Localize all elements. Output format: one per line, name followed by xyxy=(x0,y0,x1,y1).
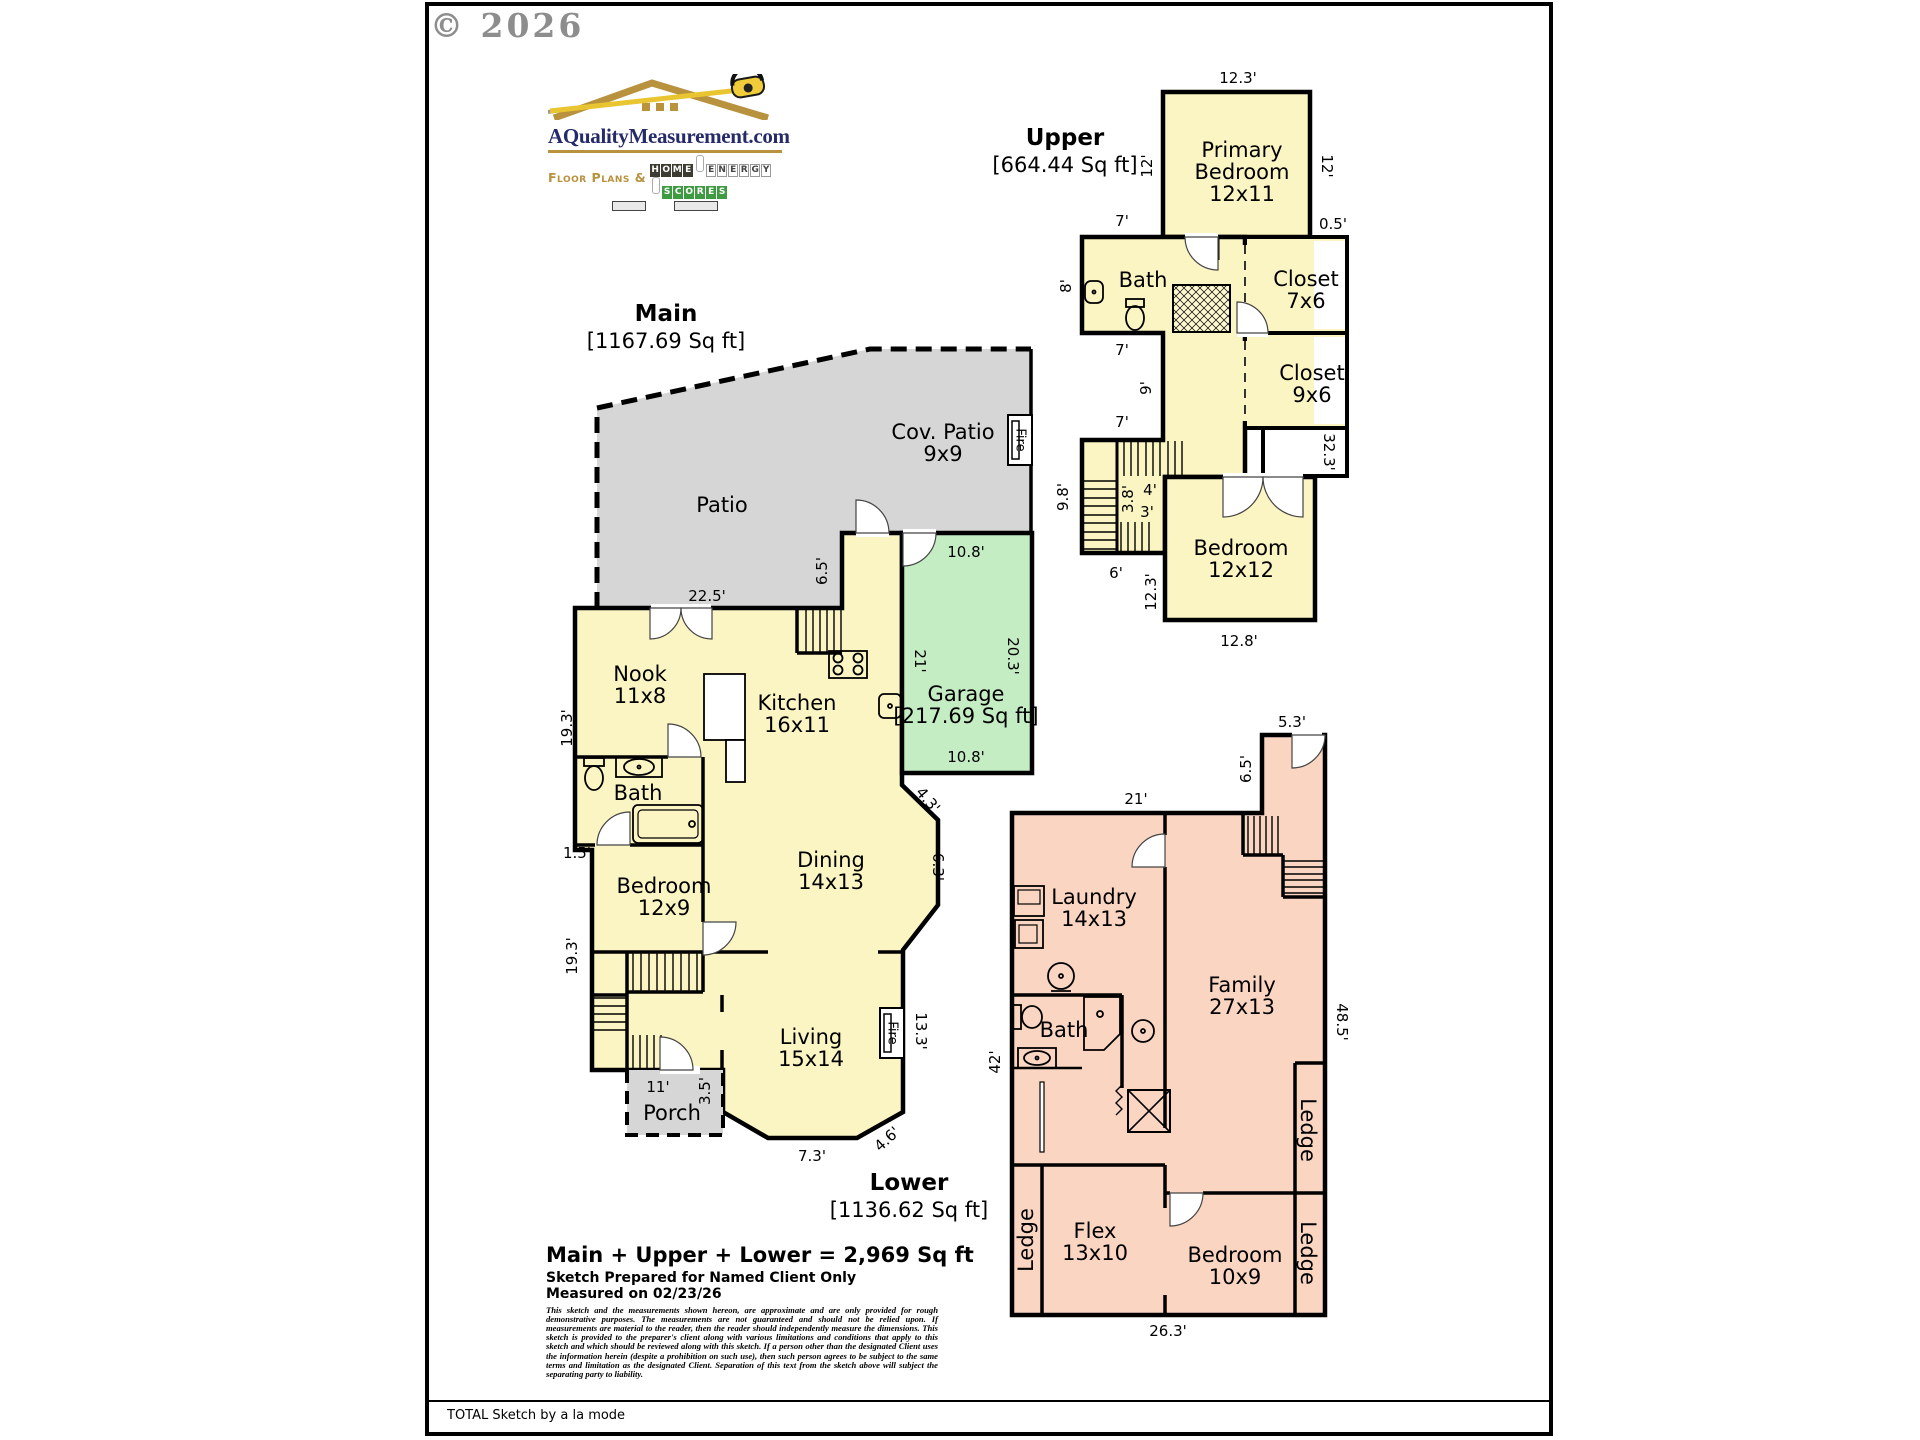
room-label: Living xyxy=(780,1025,842,1049)
room-size-label: 15x14 xyxy=(778,1047,844,1071)
dimension-label: 21' xyxy=(911,649,929,672)
dimension-label: 9' xyxy=(1137,381,1155,395)
mirror-icon xyxy=(1040,1082,1044,1152)
dimension-label: 7' xyxy=(1115,212,1129,230)
room-label: Primary xyxy=(1201,138,1282,162)
dimension-label: 6.5' xyxy=(1237,755,1255,783)
room-size-label: 14x13 xyxy=(798,870,864,894)
room-size-label: 7x6 xyxy=(1286,289,1325,313)
room-label: Flex xyxy=(1074,1219,1117,1243)
total-sqft-text: Main + Upper + Lower = 2,969 Sq ft xyxy=(546,1243,946,1267)
prepared-for-text: Sketch Prepared for Named Client Only xyxy=(546,1270,946,1286)
room-label: Bath xyxy=(1040,1018,1089,1042)
room-size-label: 9x6 xyxy=(1292,383,1331,407)
dimension-label: 19.3' xyxy=(558,709,576,747)
dimension-label: 12.8' xyxy=(1220,632,1258,650)
level-title-main: Main xyxy=(635,301,698,327)
dimension-label: 0.5' xyxy=(1319,215,1347,233)
disclaimer-text: This sketch and the measurements shown h… xyxy=(546,1306,938,1379)
room-label: Bedroom xyxy=(1188,1243,1283,1267)
level-sqft-main: [1167.69 Sq ft] xyxy=(587,329,746,353)
dimension-label: 21' xyxy=(1124,790,1147,808)
pantry-cabinet-icon xyxy=(704,674,745,740)
room-label: Laundry xyxy=(1051,885,1137,909)
dimension-label: 6.5' xyxy=(813,557,831,585)
level-title-upper: Upper xyxy=(1026,125,1105,151)
room-size-label: 10x9 xyxy=(1209,1265,1262,1289)
dimension-label: 42' xyxy=(986,1050,1004,1073)
room-label: Cov. Patio xyxy=(891,420,994,444)
dimension-label: 10.8' xyxy=(947,543,985,561)
dimension-label: 20.3' xyxy=(1004,637,1022,675)
dimension-label: 22.5' xyxy=(688,587,726,605)
level-sqft-upper: [664.44 Sq ft] xyxy=(992,153,1137,177)
room-label: Patio xyxy=(696,493,748,517)
room-label: Bath xyxy=(614,781,663,805)
room-size-label: 12x9 xyxy=(638,896,691,920)
room-label: Bath xyxy=(1119,268,1168,292)
room-label: Closet xyxy=(1273,267,1338,291)
dimension-label: 32.3' xyxy=(1320,433,1338,471)
room-label: Kitchen xyxy=(758,691,837,715)
room-label: Closet xyxy=(1279,361,1344,385)
dimension-label: 12' xyxy=(1138,154,1156,177)
room-size-label: 27x13 xyxy=(1209,995,1275,1019)
level-sqft-lower: [1136.62 Sq ft] xyxy=(830,1198,989,1222)
room-label: Fire xyxy=(885,1021,900,1044)
floorplan-canvas: Main[1167.69 Sq ft]Cov. Patio9x9PatioNoo… xyxy=(0,0,1920,1440)
dimension-label: 13.3' xyxy=(912,1012,930,1050)
room-label: Ledge xyxy=(1296,1098,1320,1162)
room-size-label: 13x10 xyxy=(1062,1241,1128,1265)
room-label: Ledge xyxy=(1296,1221,1320,1285)
summary-block: Main + Upper + Lower = 2,969 Sq ft Sketc… xyxy=(546,1243,946,1379)
dimension-label: 12.3' xyxy=(1219,69,1257,87)
room-label: Bedroom xyxy=(1194,536,1289,560)
room-label: Fire xyxy=(1013,428,1028,451)
room-label: Garage xyxy=(928,682,1005,706)
room-label: Family xyxy=(1208,973,1276,997)
dimension-label: 1.5' xyxy=(563,844,591,862)
footer-divider xyxy=(429,1400,1549,1402)
room-size-label: [217.69 Sq ft] xyxy=(893,704,1038,728)
dimension-label: 9.8' xyxy=(1054,483,1072,511)
dimension-label: 6.3' xyxy=(929,853,947,881)
dimension-label: 26.3' xyxy=(1149,1322,1187,1340)
dimension-label: 7.3' xyxy=(798,1147,826,1165)
dimension-label: 3' xyxy=(1140,503,1154,521)
dimension-label: 4' xyxy=(1143,481,1157,499)
dimension-label: 12.3' xyxy=(1142,573,1160,611)
measured-on-text: Measured on 02/23/26 xyxy=(546,1286,946,1302)
footer-text: TOTAL Sketch by a la mode xyxy=(447,1408,625,1423)
dimension-label: 10.8' xyxy=(947,748,985,766)
dimension-label: 8' xyxy=(1057,279,1075,293)
room-size-label: 12x11 xyxy=(1209,182,1275,206)
dimension-label: 19.3' xyxy=(563,937,581,975)
room-label: Bedroom xyxy=(617,874,712,898)
room-label: Nook xyxy=(613,662,667,686)
dimension-label: 7' xyxy=(1115,413,1129,431)
dimension-label: 6' xyxy=(1109,564,1123,582)
room-size-label: 12x12 xyxy=(1208,558,1274,582)
dimension-label: 3.5' xyxy=(696,1077,714,1105)
dimension-label: 12' xyxy=(1318,154,1336,177)
dimension-label: 3.8' xyxy=(1119,485,1137,513)
room-size-label: 11x8 xyxy=(614,684,667,708)
sketch-page: © 2026 AQualityMeasurement.com Floor Pla… xyxy=(0,0,1920,1440)
room-label: Porch xyxy=(643,1101,701,1125)
room-label: Ledge xyxy=(1014,1208,1038,1272)
level-title-lower: Lower xyxy=(870,1170,949,1196)
room-size-label: 9x9 xyxy=(923,442,962,466)
dimension-label: 48.5' xyxy=(1333,1003,1351,1041)
room-label: Bedroom xyxy=(1195,160,1290,184)
dimension-label: 5.3' xyxy=(1278,713,1306,731)
main-level-plan xyxy=(575,349,1032,1138)
room-label: Dining xyxy=(797,848,865,872)
room-size-label: 14x13 xyxy=(1061,907,1127,931)
dimension-label: 11' xyxy=(646,1078,669,1096)
room-size-label: 16x11 xyxy=(764,713,830,737)
dimension-label: 7' xyxy=(1115,341,1129,359)
